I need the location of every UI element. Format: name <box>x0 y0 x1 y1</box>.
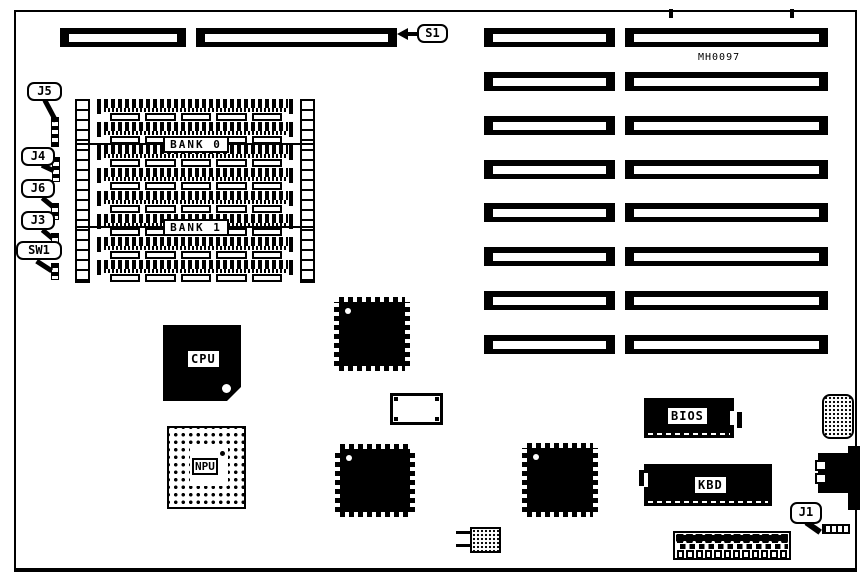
power-terminal <box>733 550 740 559</box>
qfp-pin1-dot <box>533 454 539 460</box>
simm-module <box>216 251 246 259</box>
bank1-label: BANK 1 <box>163 219 229 236</box>
slot-key <box>69 34 177 42</box>
simm-module <box>216 182 246 190</box>
expansion-slot-long <box>625 28 828 47</box>
cpu-pin1-dot <box>222 384 231 393</box>
slot-key <box>493 122 606 130</box>
simm-socket-row <box>104 191 288 214</box>
npu-socket: NPU <box>167 426 246 509</box>
j1-pin-header <box>822 524 850 534</box>
slot-key <box>493 166 606 174</box>
simm-module <box>181 251 211 259</box>
bios-label: BIOS <box>668 408 707 424</box>
simm-module <box>145 205 175 213</box>
expansion-slot-short <box>484 291 615 310</box>
simm-module <box>252 251 282 259</box>
callout-j4: J4 <box>21 147 55 166</box>
simm-module <box>110 251 140 259</box>
slot-key <box>634 209 819 217</box>
npu-center-area: NPU <box>190 448 228 486</box>
simm-module <box>145 113 175 121</box>
simm-module <box>110 228 140 236</box>
power-terminal <box>780 550 787 559</box>
kbd-notch <box>644 473 648 487</box>
simm-rail-left <box>75 99 90 283</box>
slot-key <box>634 78 819 86</box>
expansion-slot-long <box>625 247 828 266</box>
corner-mark <box>394 397 398 401</box>
expansion-slot-long <box>625 160 828 179</box>
simm-socket-block <box>104 99 288 283</box>
expansion-slot-short <box>484 160 615 179</box>
expansion-slot-long <box>625 291 828 310</box>
power-terminal <box>677 550 684 559</box>
simm-module-row <box>104 181 288 191</box>
simm-contacts <box>104 191 288 204</box>
crystal-lead <box>456 531 470 534</box>
simm-latch-column-left <box>97 99 101 283</box>
corner-mark <box>435 397 439 401</box>
simm-module <box>252 205 282 213</box>
expansion-slot-short <box>484 72 615 91</box>
expansion-slot-long <box>625 116 828 135</box>
expansion-slot-long <box>625 335 828 354</box>
bios-tab <box>737 412 742 428</box>
simm-module-row <box>104 112 288 122</box>
simm-module <box>252 113 282 121</box>
slot-key <box>634 34 819 42</box>
power-pins-row <box>676 534 788 543</box>
callout-j1: J1 <box>790 502 822 524</box>
power-terminal <box>742 550 749 559</box>
simm-module <box>110 113 140 121</box>
expansion-slot-short <box>484 335 615 354</box>
simm-contacts <box>104 237 288 250</box>
simm-module <box>145 182 175 190</box>
slot-key <box>493 78 606 86</box>
simm-module <box>181 205 211 213</box>
slot-key <box>493 341 606 349</box>
sw1-pin-header <box>51 263 59 280</box>
expansion-slot-short <box>484 28 615 47</box>
power-terminal <box>770 550 777 559</box>
simm-module <box>181 159 211 167</box>
simm-module <box>110 205 140 213</box>
bios-socket-dashes <box>648 433 730 435</box>
top-slot-right <box>196 28 397 47</box>
simm-module <box>216 113 246 121</box>
part-number: MH0097 <box>698 52 740 63</box>
callout-j5: J5 <box>27 82 62 101</box>
simm-module <box>252 274 282 282</box>
power-terminal <box>761 550 768 559</box>
simm-module-row <box>104 158 288 168</box>
simm-socket-row <box>104 168 288 191</box>
kbd-tab <box>639 470 644 486</box>
simm-module <box>252 159 282 167</box>
simm-contacts <box>104 260 288 273</box>
simm-module <box>110 274 140 282</box>
npu-label: NPU <box>192 458 218 475</box>
simm-contacts <box>104 122 288 135</box>
slot-key <box>493 297 606 305</box>
callout-j3: J3 <box>21 211 55 230</box>
simm-module <box>145 274 175 282</box>
npu-pin1-dot <box>220 451 225 456</box>
bank0-label: BANK 0 <box>163 136 229 153</box>
simm-module-row <box>104 204 288 214</box>
simm-rail-right <box>300 99 315 283</box>
qfp-chip-3 <box>522 443 598 517</box>
expansion-slot-long <box>625 203 828 222</box>
slot-key <box>493 253 606 261</box>
simm-contacts <box>104 168 288 181</box>
bios-notch <box>730 411 734 425</box>
simm-module <box>145 251 175 259</box>
qfp-chip-1 <box>334 297 410 371</box>
qfp-pin1-dot <box>345 308 351 314</box>
simm-module <box>181 182 211 190</box>
callout-j6: J6 <box>21 179 55 198</box>
callout-sw1: SW1 <box>16 241 62 260</box>
slot-key <box>634 297 819 305</box>
simm-module-row <box>104 273 288 283</box>
simm-module <box>216 159 246 167</box>
slot-key <box>634 341 819 349</box>
slot-key <box>493 209 606 217</box>
oscillator-socket <box>390 393 443 425</box>
slot-key <box>205 34 388 42</box>
top-slot-left <box>60 28 186 47</box>
simm-module <box>181 113 211 121</box>
power-tab-right <box>790 9 794 18</box>
simm-module <box>252 228 282 236</box>
simm-socket-row <box>104 99 288 122</box>
qfp-body <box>339 302 405 366</box>
din-pin-tab <box>815 460 827 471</box>
qfp-chip-2 <box>335 444 415 517</box>
power-connector <box>673 531 791 560</box>
simm-module <box>145 159 175 167</box>
expansion-slot-short <box>484 116 615 135</box>
expansion-slot-short <box>484 203 615 222</box>
expansion-slot-long <box>625 72 828 91</box>
kbd-socket-dashes <box>648 501 768 503</box>
crystal-lead <box>456 544 470 547</box>
expansion-slot-short <box>484 247 615 266</box>
slot-key <box>634 166 819 174</box>
simm-module <box>181 274 211 282</box>
motherboard-diagram: S1 J5 J4 J6 J3 SW1 BANK 0 BANK 1 MH0097 … <box>0 0 862 578</box>
simm-contacts <box>104 99 288 112</box>
qfp-body <box>527 448 593 512</box>
simm-module <box>110 159 140 167</box>
power-terminal <box>752 550 759 559</box>
power-tab-left <box>669 9 673 18</box>
simm-module <box>252 182 282 190</box>
power-terminal <box>696 550 703 559</box>
corner-mark <box>394 417 398 421</box>
power-terminal <box>705 550 712 559</box>
slot-key <box>634 253 819 261</box>
power-terminal <box>686 550 693 559</box>
power-terminal <box>724 550 731 559</box>
edge-connector <box>822 394 854 439</box>
slot-key <box>493 34 606 42</box>
kbd-label: KBD <box>695 477 726 493</box>
din-pin-tab <box>815 473 827 484</box>
callout-s1: S1 <box>417 24 448 43</box>
qfp-body <box>340 449 410 512</box>
simm-latch-column-right <box>289 99 293 283</box>
slot-key <box>634 122 819 130</box>
crystal-component <box>470 527 501 553</box>
power-terminal <box>714 550 721 559</box>
simm-module <box>110 182 140 190</box>
corner-mark <box>435 417 439 421</box>
simm-module <box>216 205 246 213</box>
cpu-label: CPU <box>188 351 219 367</box>
qfp-pin1-dot <box>346 455 352 461</box>
simm-socket-row <box>104 260 288 283</box>
simm-module <box>216 274 246 282</box>
power-terminal-row <box>675 549 789 559</box>
simm-module-row <box>104 250 288 260</box>
simm-socket-row <box>104 237 288 260</box>
